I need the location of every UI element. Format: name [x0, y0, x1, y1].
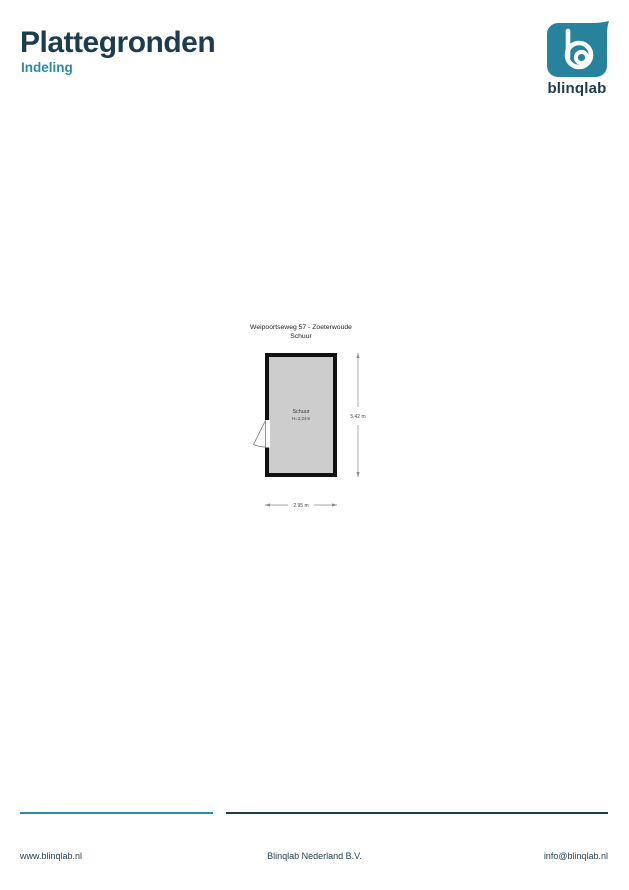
floorplan-drawing: Weipoortseweg 57 - Zoeterwoude Schuur Sc…: [225, 313, 405, 523]
footer-divider-teal: [20, 812, 213, 814]
page-title: Plattegronden: [20, 26, 215, 60]
floorplan-subtitle: Schuur: [290, 333, 312, 340]
document-page: Plattegronden Indeling blinqlab Weipoort…: [0, 0, 629, 890]
dim-vertical-arrow-top: [356, 353, 359, 358]
logo-wordmark: blinqlab: [539, 80, 615, 97]
dim-horizontal-arrow-left: [265, 503, 270, 506]
blinqlab-logo: blinqlab: [545, 21, 609, 101]
dim-horizontal-arrow-right: [332, 503, 337, 506]
dim-vertical-label: 5.42 m: [350, 414, 365, 420]
footer-email-link[interactable]: info@blinqlab.nl: [544, 851, 608, 861]
floorplan-title: Weipoortseweg 57 - Zoeterwoude: [250, 324, 352, 331]
dim-vertical-arrow-bottom: [356, 472, 359, 477]
footer-company-name: Blinqlab Nederland B.V.: [0, 851, 629, 861]
door-swing-icon: [254, 421, 266, 448]
room-height-label: H=3,24m: [292, 416, 311, 421]
floorplan: Weipoortseweg 57 - Zoeterwoude Schuur Sc…: [225, 313, 405, 523]
page-subtitle: Indeling: [21, 60, 73, 75]
dim-horizontal-label: 2.95 m: [293, 503, 308, 509]
blinqlab-logo-icon: [545, 21, 609, 79]
room-name-label: Schuur: [292, 409, 309, 415]
room-walls: [267, 355, 335, 475]
footer-divider-dark: [226, 812, 608, 814]
